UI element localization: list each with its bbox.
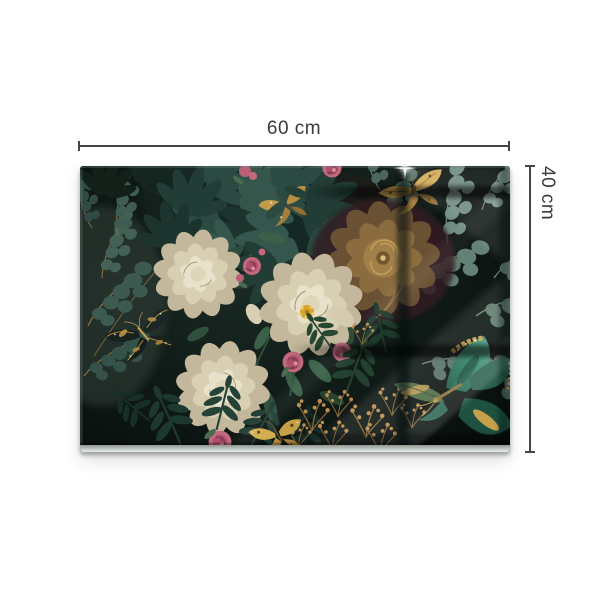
width-dimension-line bbox=[79, 145, 509, 147]
width-dimension-tick-right bbox=[508, 141, 510, 151]
product-dimension-preview: 60 cm 40 cm bbox=[0, 0, 600, 600]
height-dimension-tick-top bbox=[525, 165, 535, 167]
height-dimension-label: 40 cm bbox=[536, 166, 558, 452]
height-dimension-line bbox=[529, 166, 531, 452]
glass-wall-art-panel bbox=[80, 166, 510, 452]
width-dimension-label: 60 cm bbox=[79, 118, 509, 140]
width-dimension-tick-left bbox=[78, 141, 80, 151]
artwork-illustration bbox=[80, 166, 510, 452]
height-dimension-tick-bottom bbox=[525, 451, 535, 453]
